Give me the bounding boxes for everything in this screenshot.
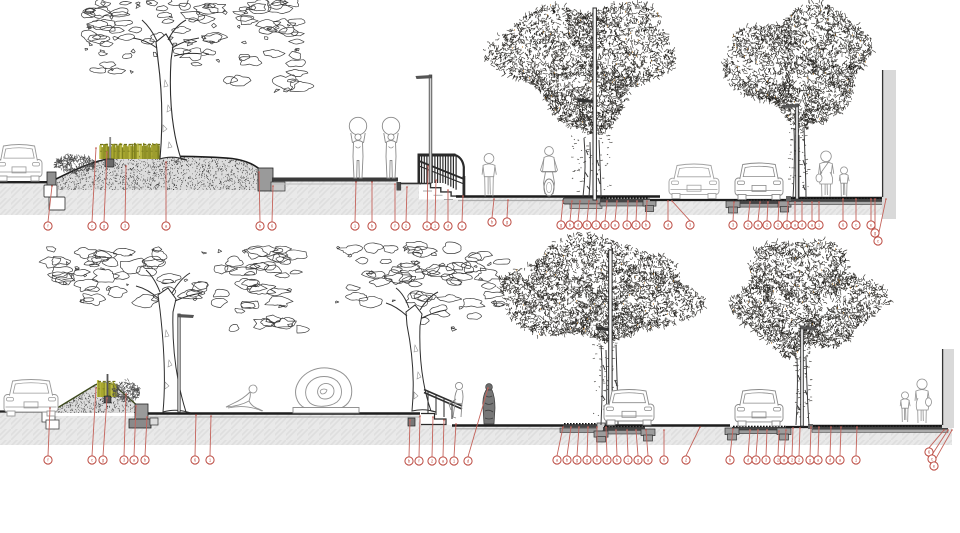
svg-text:c: c [855, 223, 857, 228]
svg-text:c: c [91, 458, 93, 463]
svg-text:c: c [877, 239, 879, 244]
svg-text:c: c [91, 224, 93, 229]
svg-text:c: c [931, 457, 933, 462]
